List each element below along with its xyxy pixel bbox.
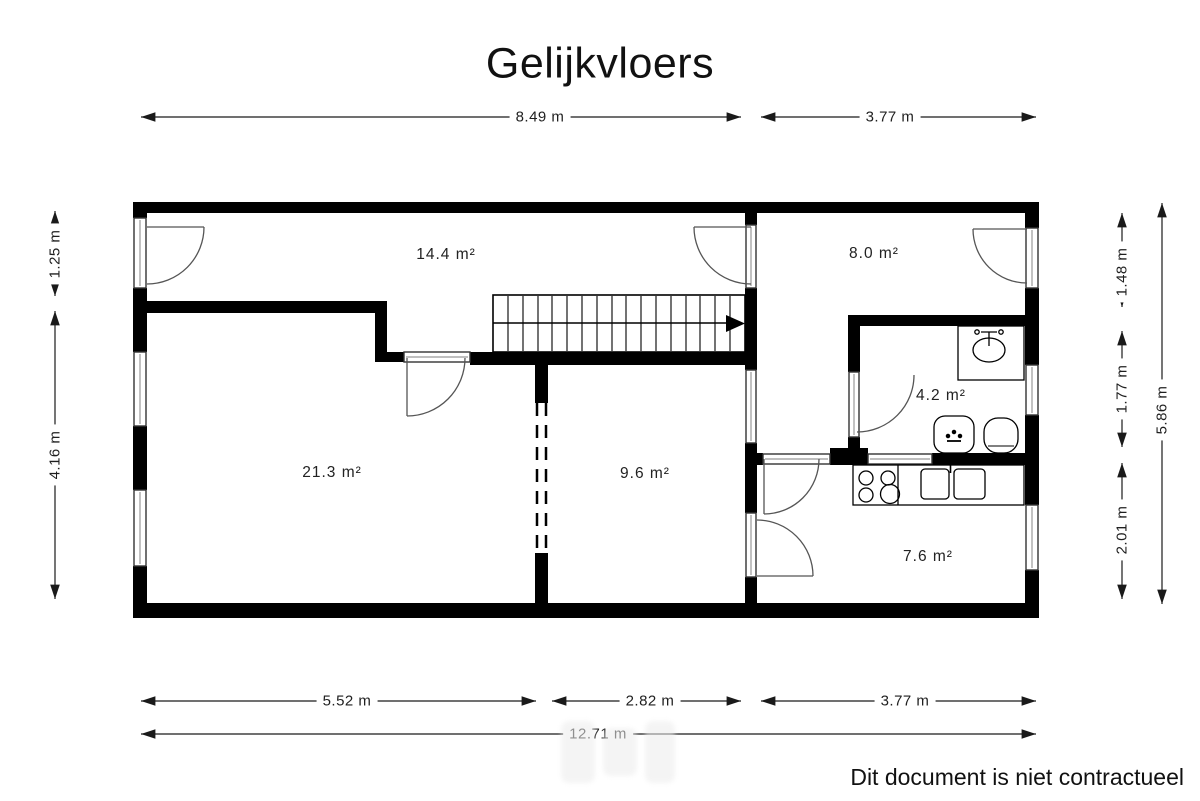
- kitchen-middle-door-swing: [757, 520, 813, 576]
- window-frames: [134, 218, 1038, 577]
- windows: [134, 218, 1038, 577]
- dashed-partition: [537, 403, 546, 553]
- dim-right-lower: 2.01 m: [1114, 500, 1131, 561]
- room-label-left-room: 21.3 m²: [302, 464, 362, 482]
- toilet: [984, 418, 1018, 453]
- room-label-bathroom: 4.2 m²: [916, 387, 966, 405]
- top-right-door-swing: [973, 229, 1027, 283]
- dim-right-upper: 1.48 m: [1114, 242, 1131, 303]
- dim-bottom-middle: 2.82 m: [620, 693, 681, 710]
- dim-left-lower: 4.16 m: [47, 425, 64, 486]
- door-swings: [147, 227, 1027, 576]
- room-label-middle-room: 9.6 m²: [620, 465, 670, 483]
- floorplan-page: Gelijkvloers 8.49 m 3.77 m 5.52 m 2.82 m…: [0, 0, 1200, 801]
- dim-top-left-width: 8.49 m: [510, 109, 571, 126]
- hall-door-swing: [694, 227, 751, 284]
- living-door-swing: [407, 358, 465, 416]
- disclaimer-text: Dit document is niet contractueel: [850, 764, 1184, 791]
- bathroom-door-swing: [857, 375, 914, 432]
- dim-right-middle: 1.77 m: [1114, 359, 1131, 420]
- dim-bottom-total: 12.71 m: [563, 726, 633, 743]
- dim-top-right-width: 3.77 m: [860, 109, 921, 126]
- window-center-lines: [140, 220, 1032, 575]
- room-label-kitchen: 7.6 m²: [903, 548, 953, 566]
- bidet: [934, 416, 974, 453]
- page-title: Gelijkvloers: [486, 40, 714, 89]
- staircase: [493, 295, 745, 352]
- interior-walls: [147, 202, 1025, 618]
- washbasin: [958, 326, 1024, 380]
- floor-plan-drawing: [0, 0, 1200, 801]
- kitchen-vestibule-door-swing: [764, 459, 819, 514]
- fixtures: [853, 326, 1024, 505]
- dim-left-upper: 1.25 m: [47, 224, 64, 285]
- dim-bottom-left: 5.52 m: [317, 693, 378, 710]
- room-label-top-hall: 14.4 m²: [416, 246, 476, 264]
- dim-bottom-right: 3.77 m: [875, 693, 936, 710]
- entry-door-swing: [147, 227, 204, 284]
- room-label-top-right: 8.0 m²: [849, 245, 899, 263]
- dim-right-total: 5.86 m: [1154, 380, 1171, 441]
